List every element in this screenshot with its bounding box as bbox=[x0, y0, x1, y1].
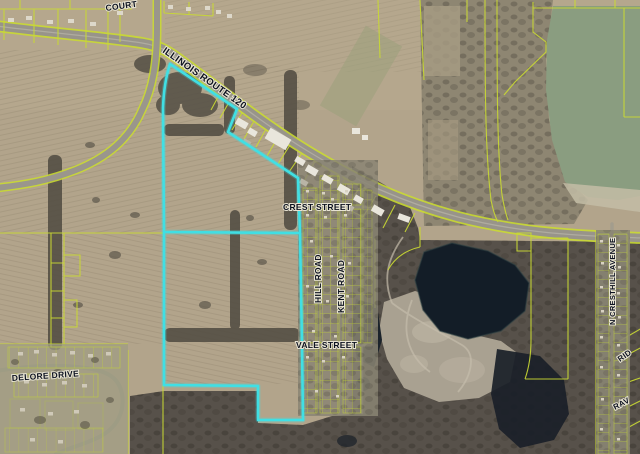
aerial-parcel-map-canvas[interactable]: ILLINOIS ROUTE 120 COURT CREST STREET HI… bbox=[0, 0, 640, 454]
label-n-cresthill-avenue: N CRESTHILL AVENUE bbox=[608, 238, 617, 325]
highlighted-parcel-split-line bbox=[164, 232, 300, 233]
label-kent-road: KENT ROAD bbox=[336, 260, 346, 313]
label-vale-street: VALE STREET bbox=[296, 340, 358, 350]
label-crest-street: CREST STREET bbox=[283, 202, 352, 212]
map-viewport[interactable]: ILLINOIS ROUTE 120 COURT CREST STREET HI… bbox=[0, 0, 640, 454]
label-hill-road: HILL ROAD bbox=[313, 254, 323, 303]
